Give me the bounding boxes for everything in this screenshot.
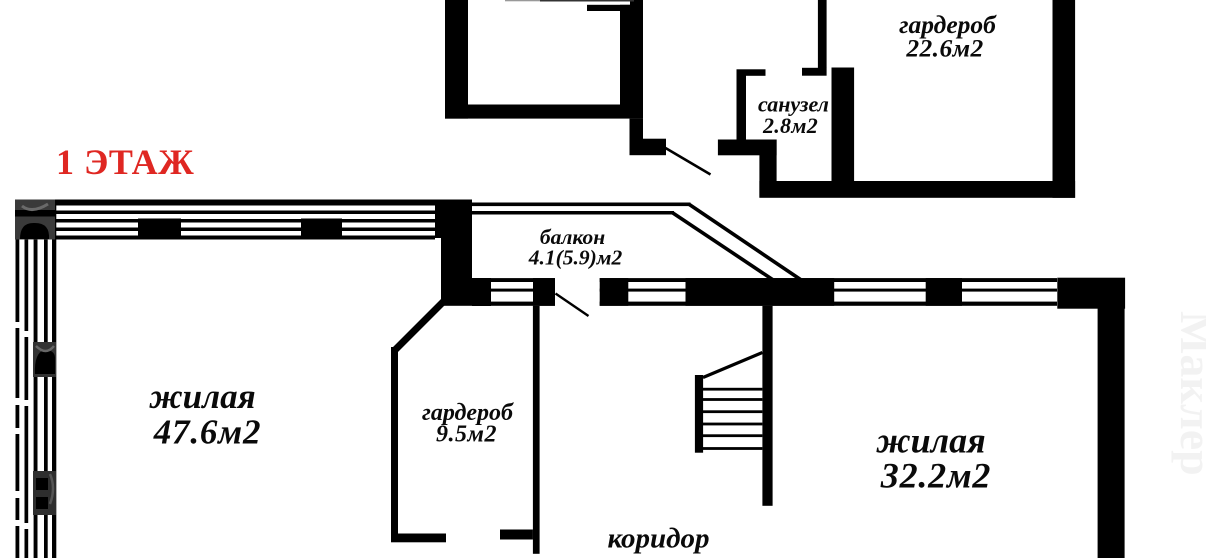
svg-text:жилая: жилая [148,377,255,416]
svg-text:47.6м2: 47.6м2 [153,412,262,451]
svg-text:Маклер: Маклер [1171,311,1206,476]
svg-text:1 ЭТАЖ: 1 ЭТАЖ [56,142,194,182]
svg-text:2.8м2: 2.8м2 [762,113,818,138]
svg-text:22.6м2: 22.6м2 [905,34,983,63]
svg-text:9.5м2: 9.5м2 [436,421,497,447]
svg-text:коридор: коридор [607,523,709,555]
svg-text:32.2м2: 32.2м2 [880,455,991,495]
svg-text:жилая: жилая [875,420,985,460]
svg-text:4.1(5.9)м2: 4.1(5.9)м2 [528,246,623,270]
